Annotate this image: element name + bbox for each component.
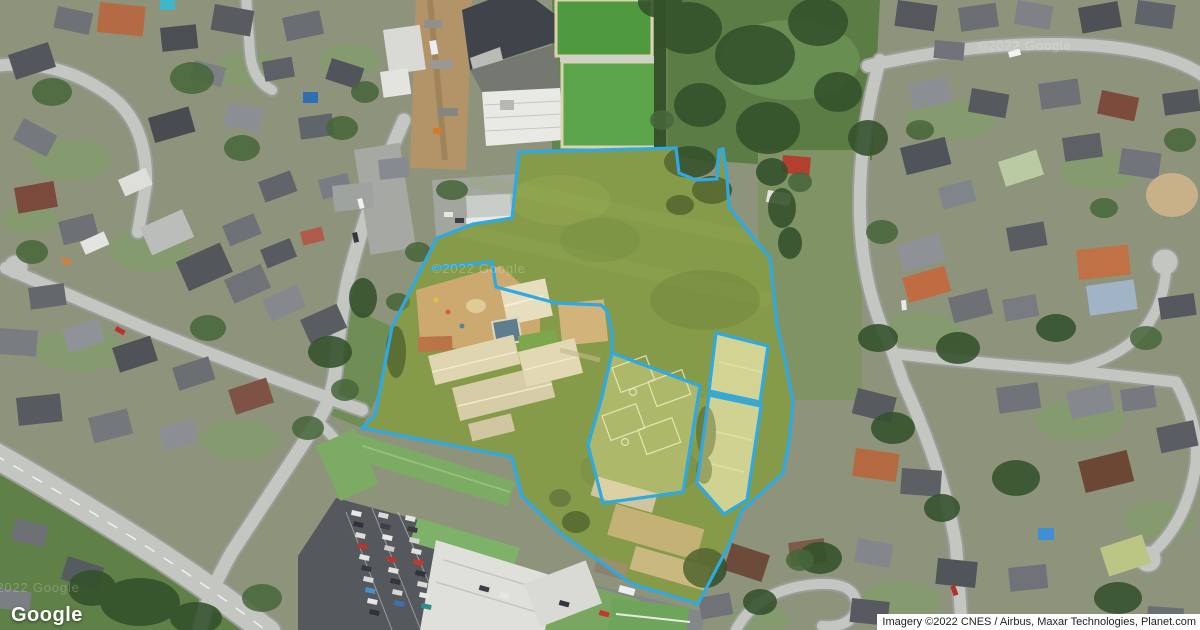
satellite-imagery[interactable]: ©2022 Google ©2022 Google ©2022 Google	[0, 0, 1200, 630]
map-canvas[interactable]: ©2022 Google ©2022 Google ©2022 Google G…	[0, 0, 1200, 630]
attribution-bar: Imagery ©2022 CNES / Airbus, Maxar Techn…	[877, 614, 1200, 630]
attribution-text: Imagery ©2022 CNES / Airbus, Maxar Techn…	[882, 616, 1196, 628]
watermark-text: ©2022 Google	[432, 261, 526, 276]
google-logo[interactable]: Google	[11, 604, 83, 627]
watermark-text: ©2022 Google	[0, 580, 80, 595]
watermark-text: ©2022 Google	[978, 38, 1072, 53]
